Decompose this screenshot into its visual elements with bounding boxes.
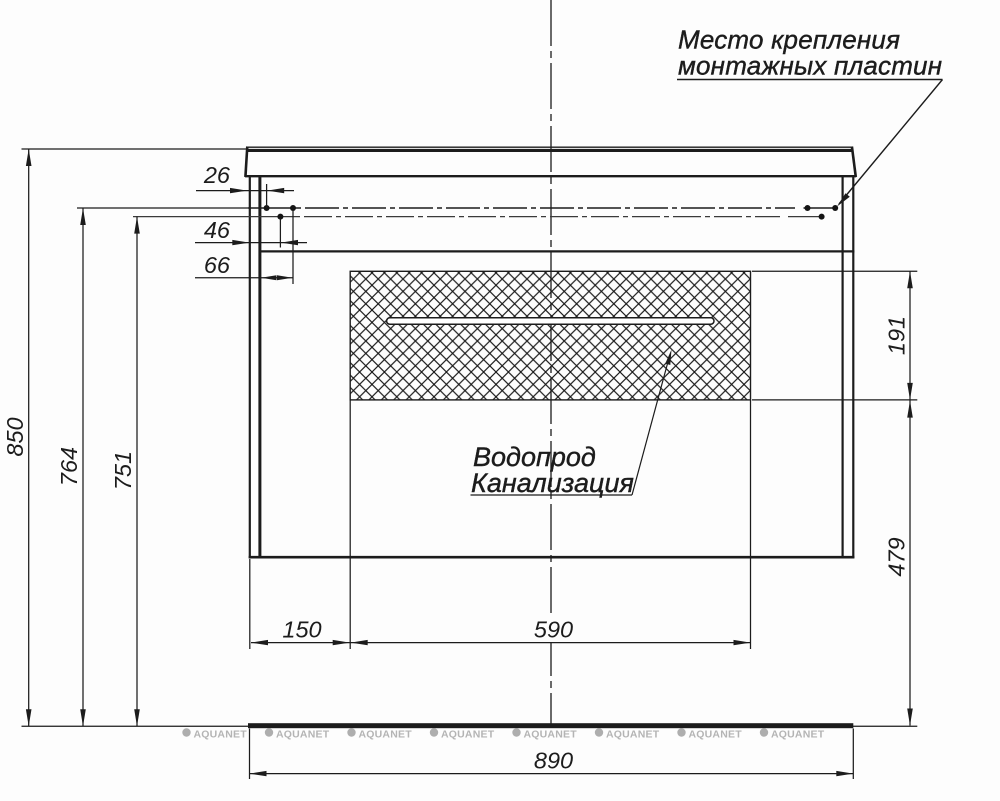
svg-text:AQUANET: AQUANET (441, 729, 495, 741)
svg-text:191: 191 (884, 316, 910, 355)
svg-text:AQUANET: AQUANET (606, 729, 660, 741)
svg-text:150: 150 (282, 617, 321, 643)
svg-text:66: 66 (204, 252, 231, 278)
svg-text:764: 764 (56, 447, 82, 486)
svg-text:26: 26 (203, 162, 231, 188)
svg-text:AQUANET: AQUANET (689, 729, 743, 741)
svg-text:590: 590 (534, 617, 573, 643)
svg-text:AQUANET: AQUANET (194, 729, 248, 741)
svg-text:751: 751 (110, 451, 136, 490)
svg-text:AQUANET: AQUANET (276, 729, 330, 741)
svg-text:AQUANET: AQUANET (359, 729, 413, 741)
svg-text:монтажных пластин: монтажных пластин (678, 51, 942, 81)
svg-text:AQUANET: AQUANET (524, 729, 578, 741)
svg-text:850: 850 (2, 417, 28, 456)
svg-text:890: 890 (534, 748, 573, 774)
svg-text:479: 479 (884, 537, 910, 576)
svg-text:AQUANET: AQUANET (771, 729, 825, 741)
svg-text:46: 46 (204, 217, 231, 243)
svg-text:Канализация: Канализация (471, 468, 634, 498)
